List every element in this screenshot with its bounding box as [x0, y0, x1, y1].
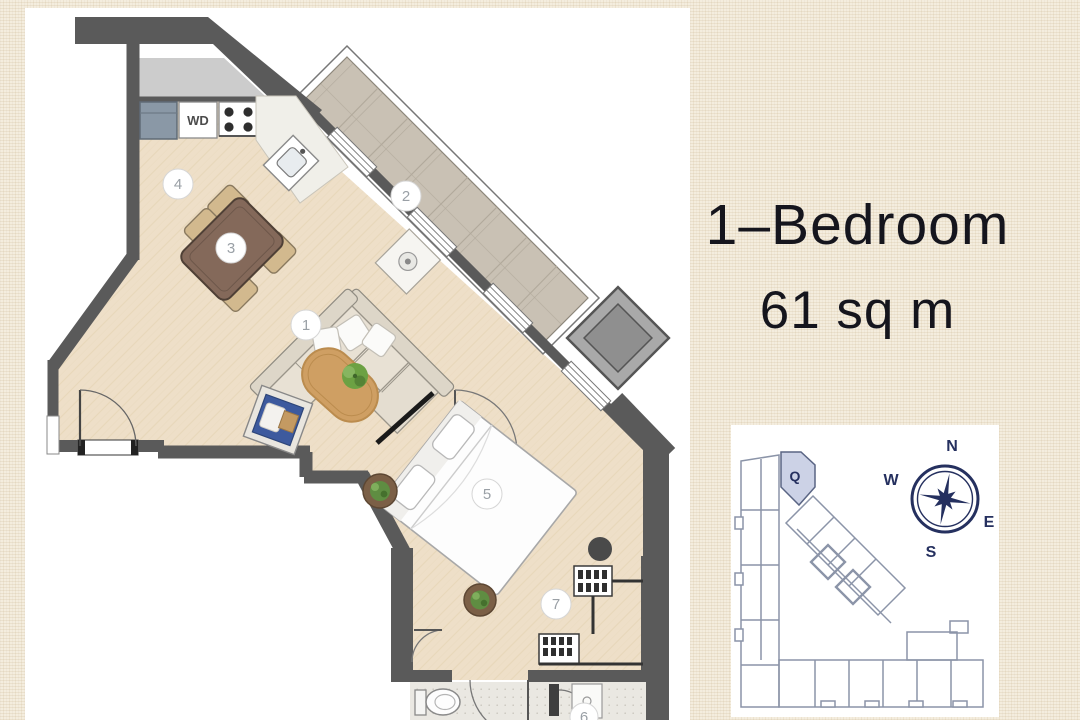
toilet: [415, 689, 460, 715]
marker-1: 1: [291, 310, 321, 340]
page-background: WD: [0, 0, 1080, 720]
compass-w-label: W: [883, 472, 899, 489]
site-map-svg: Q N W E S: [731, 425, 999, 717]
floor-plan-svg: WD: [25, 8, 690, 720]
compass-star: [919, 473, 970, 524]
site-map-box: Q N W E S: [731, 425, 999, 717]
compass-e-label: E: [984, 514, 995, 531]
bedroom-plant: [464, 584, 496, 616]
column: [588, 537, 612, 561]
unit-q-label: Q: [790, 468, 801, 484]
marker-5: 5: [472, 479, 502, 509]
page-title: 1–Bedroom: [700, 190, 1015, 260]
stove: [219, 102, 259, 136]
rug-plant: [342, 363, 368, 389]
entry-sidelight-window: [47, 416, 59, 454]
marker-1-label: 1: [302, 317, 310, 334]
marker-2: 2: [391, 181, 421, 211]
marker-2-label: 2: [402, 188, 410, 205]
entry-threshold: [78, 440, 138, 455]
shower-panel: [549, 684, 559, 716]
washer-dryer-label: WD: [187, 113, 209, 128]
marker-3-label: 3: [227, 240, 235, 257]
marker-6-label: 6: [580, 709, 588, 720]
title-block: 1–Bedroom 61 sq m: [700, 190, 1015, 346]
bedroom-plant: [363, 474, 397, 508]
marker-4: 4: [163, 169, 193, 199]
compass-n-label: N: [946, 438, 958, 455]
compass-s-label: S: [926, 544, 937, 561]
marker-3: 3: [216, 233, 246, 263]
bathroom: [410, 680, 646, 720]
fridge: [140, 102, 177, 139]
page-subtitle: 61 sq m: [700, 276, 1015, 346]
marker-4-label: 4: [174, 176, 182, 193]
marker-5-label: 5: [483, 486, 491, 503]
unit-q: Q: [781, 452, 815, 505]
marker-7-label: 7: [552, 596, 560, 613]
compass: N W E S: [883, 438, 994, 561]
floor-plan-panel: WD: [25, 8, 690, 720]
marker-7: 7: [541, 589, 571, 619]
